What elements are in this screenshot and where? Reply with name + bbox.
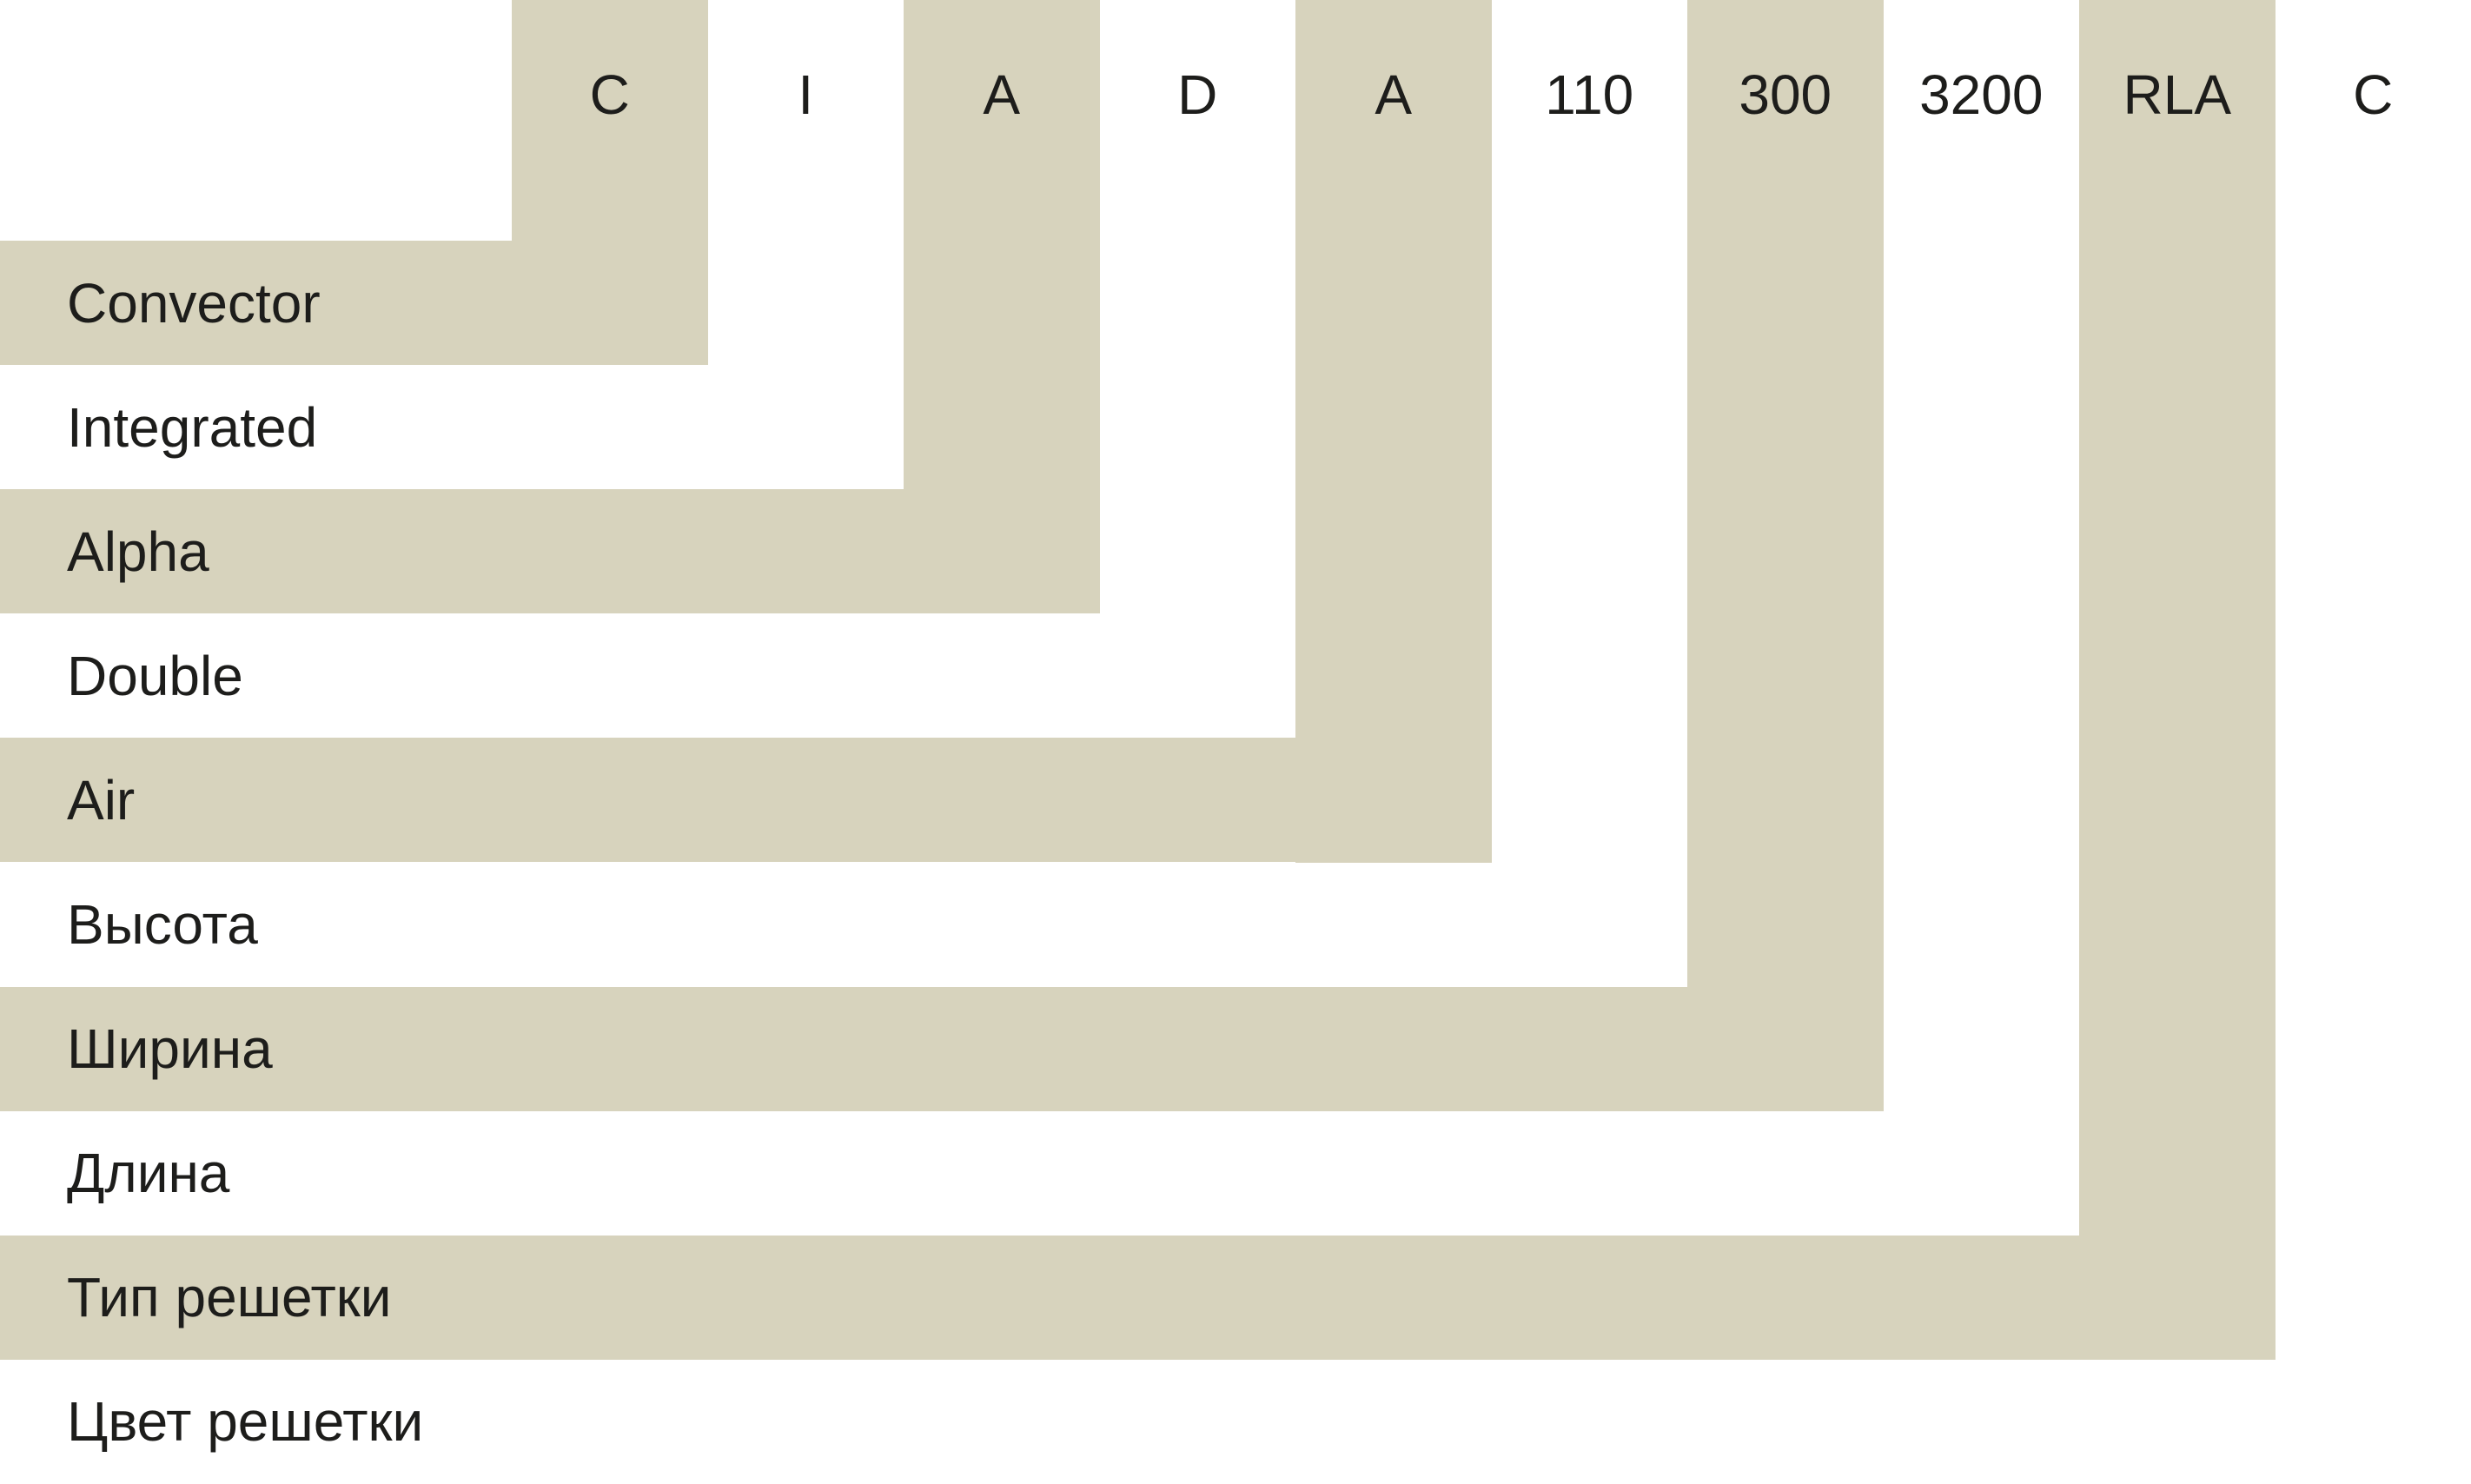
row-label-air: Air: [0, 738, 135, 862]
row-label-double: Double: [0, 613, 243, 738]
row-label-width: Ширина: [0, 987, 273, 1111]
band-row-air: [0, 738, 1492, 862]
code-segment-integrated: I: [708, 0, 904, 189]
band-column-grille-type: [2079, 0, 2276, 1360]
code-segment-grille-color: C: [2276, 0, 2471, 189]
code-segment-width: 300: [1687, 0, 1884, 189]
code-segment-height: 110: [1492, 0, 1688, 189]
row-label-height: Высота: [0, 863, 258, 987]
code-segment-alpha: A: [904, 0, 1100, 189]
row-label-length: Длина: [0, 1111, 229, 1236]
band-row-width: [0, 987, 1884, 1111]
code-segment-grille-type: RLA: [2079, 0, 2276, 189]
code-segment-double: D: [1100, 0, 1296, 189]
row-label-grille-color: Цвет решетки: [0, 1360, 423, 1484]
row-label-integrated: Integrated: [0, 365, 317, 489]
row-label-alpha: Alpha: [0, 489, 209, 613]
row-label-convector: Convector: [0, 241, 321, 365]
band-column-grille-color: [2276, 0, 2471, 1484]
code-segment-air: A: [1295, 0, 1492, 189]
code-segment-convector: C: [512, 0, 708, 189]
nomenclature-diagram: C I A D A 110 300 3200 RLA C Convector I…: [0, 0, 2471, 1484]
band-row-length: [0, 1111, 2079, 1236]
code-segment-length: 3200: [1884, 0, 2080, 189]
row-label-grille-type: Тип решетки: [0, 1236, 392, 1360]
